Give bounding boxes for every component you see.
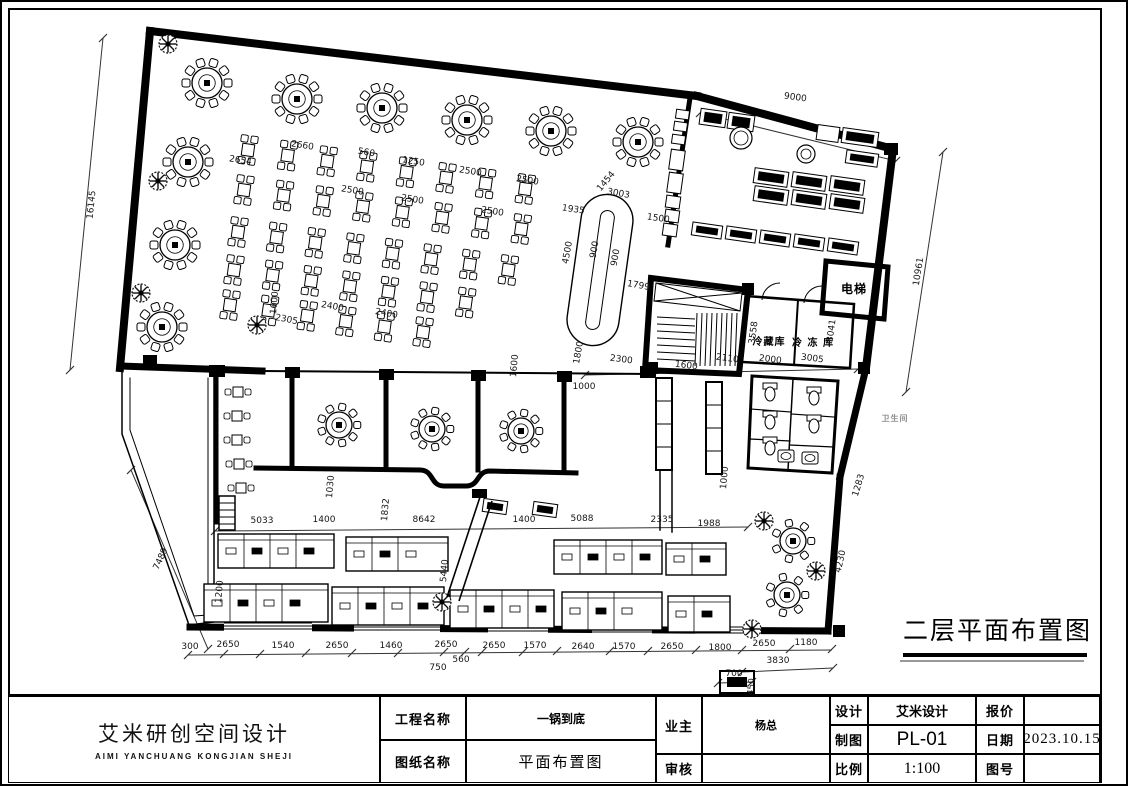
scale-label: 比例 <box>830 754 868 783</box>
design-value: 艾米设计 <box>868 696 976 725</box>
plan-title: 二层平面布置图 <box>903 611 1091 662</box>
quote-label: 报价 <box>976 696 1024 725</box>
draft-value: PL-01 <box>868 725 976 754</box>
company-cell: 艾米研创空间设计 AIMI YANCHUANG KONGJIAN SHEJI <box>8 696 380 783</box>
date-label: 日期 <box>976 725 1024 754</box>
design-label: 设计 <box>830 696 868 725</box>
sheet-value: 平面布置图 <box>466 740 656 783</box>
scale-value: 1:100 <box>868 754 976 783</box>
plan-title-text: 二层平面布置图 <box>903 611 1091 647</box>
sheet-label: 图纸名称 <box>380 740 466 783</box>
owner-label: 业主 <box>656 696 702 754</box>
draft-label: 制图 <box>830 725 868 754</box>
project-value: 一锅到底 <box>466 696 656 740</box>
drawingno-value <box>1024 754 1100 783</box>
owner-value: 杨总 <box>702 696 830 754</box>
quote-value <box>1024 696 1100 725</box>
company-pinyin: AIMI YANCHUANG KONGJIAN SHEJI <box>95 752 293 761</box>
title-block: 艾米研创空间设计 AIMI YANCHUANG KONGJIAN SHEJI 工… <box>8 694 1100 783</box>
plan-title-underline <box>903 653 1087 657</box>
company-name: 艾米研创空间设计 <box>98 718 290 748</box>
drawingno-label: 图号 <box>976 754 1024 783</box>
project-label: 工程名称 <box>380 696 466 740</box>
drawing-frame <box>8 8 1102 783</box>
date-value: 2023.10.15 <box>1024 725 1100 754</box>
review-value <box>702 754 830 783</box>
plan-title-underline-shadow <box>900 660 1084 662</box>
review-label: 审核 <box>656 754 702 783</box>
